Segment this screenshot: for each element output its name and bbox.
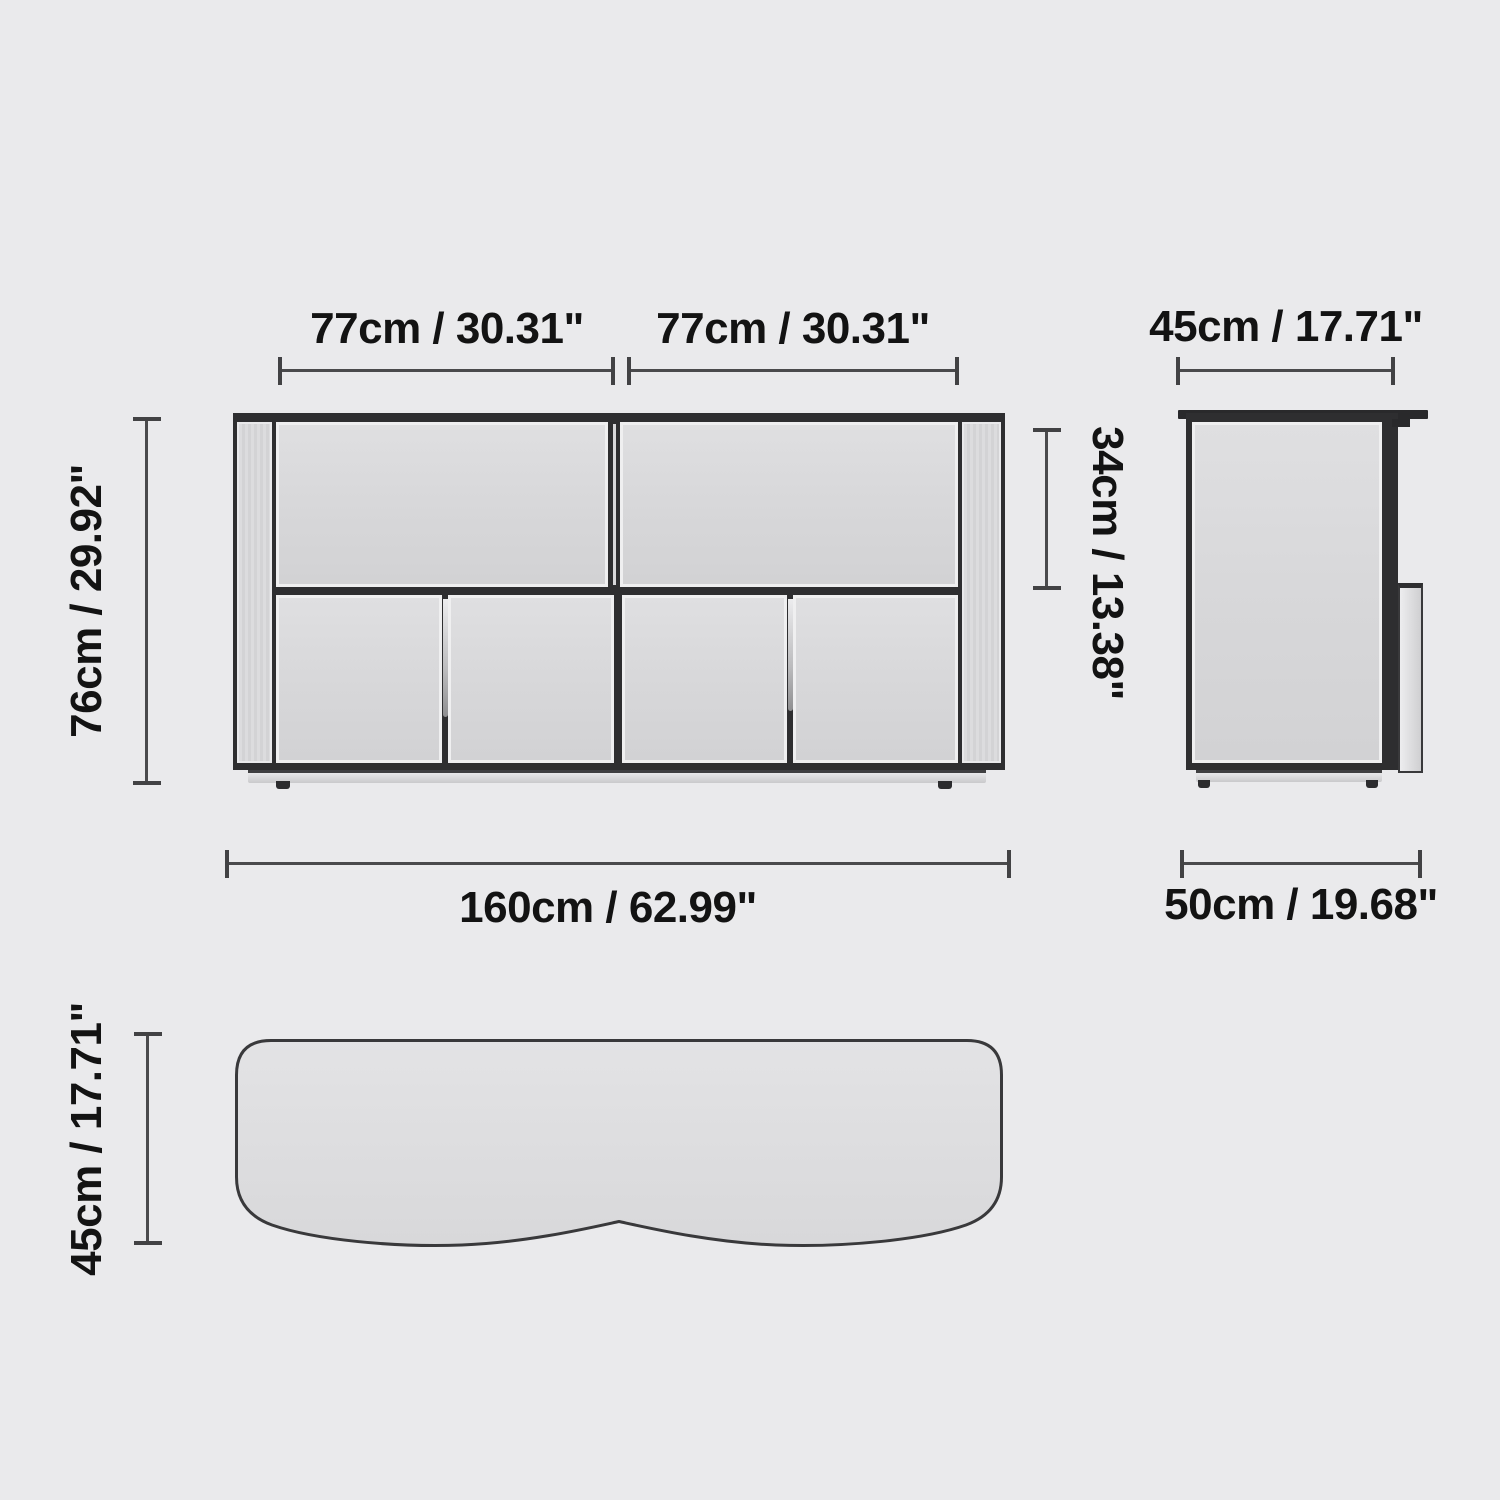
front-top-drawer-left bbox=[276, 422, 608, 587]
side-panel bbox=[1192, 422, 1382, 763]
top-view-drawing bbox=[233, 1037, 1005, 1250]
dim-label-front-width-right: 77cm / 30.31" bbox=[593, 299, 993, 359]
top-view-outline bbox=[237, 1041, 1002, 1246]
dim-label-side-base-depth: 50cm / 19.68" bbox=[1101, 875, 1500, 935]
side-view-drawing bbox=[1186, 413, 1398, 770]
dim-line-side-base-depth bbox=[1182, 862, 1420, 865]
front-view-drawing bbox=[233, 413, 1005, 770]
dim-line-side-top-depth bbox=[1178, 369, 1393, 372]
dim-label-front-width-left: 77cm / 30.31" bbox=[247, 299, 647, 359]
front-foot-right bbox=[938, 781, 952, 789]
dim-label-front-total-width: 160cm / 62.99" bbox=[408, 878, 808, 938]
dim-label-side-top-depth: 45cm / 17.71" bbox=[1086, 297, 1486, 357]
front-left-side-panel bbox=[237, 422, 272, 763]
dim-line-drawer-height bbox=[1045, 430, 1048, 588]
dim-label-top-view-depth: 45cm / 17.71" bbox=[57, 939, 117, 1339]
side-plinth bbox=[1196, 770, 1382, 782]
front-foot-left bbox=[276, 781, 290, 789]
front-top-drawer-right bbox=[620, 422, 958, 587]
side-foot-right bbox=[1366, 780, 1378, 788]
front-plinth bbox=[248, 770, 986, 783]
side-back-strip bbox=[1398, 583, 1423, 773]
front-door-handle-right bbox=[788, 599, 793, 711]
front-door-1 bbox=[276, 595, 442, 763]
dim-line-top-view-depth bbox=[146, 1034, 149, 1243]
front-right-side-panel bbox=[962, 422, 1001, 763]
side-top-hinge bbox=[1392, 419, 1410, 427]
dim-label-front-height: 76cm / 29.92" bbox=[57, 401, 117, 801]
front-door-2 bbox=[448, 595, 614, 763]
dimension-diagram: 77cm / 30.31" 77cm / 30.31" 45cm / 17.71… bbox=[0, 0, 1500, 1500]
dim-line-front-total-width bbox=[227, 862, 1009, 865]
front-door-4 bbox=[793, 595, 958, 763]
dim-line-front-height bbox=[145, 419, 148, 783]
side-foot-left bbox=[1198, 780, 1210, 788]
dim-line-front-width-left bbox=[280, 369, 613, 372]
front-door-3 bbox=[622, 595, 787, 763]
dim-line-front-width-right bbox=[629, 369, 957, 372]
front-door-handle-left bbox=[443, 599, 448, 717]
dim-label-drawer-height: 34cm / 13.38" bbox=[1077, 363, 1137, 763]
front-drawer-gap-line bbox=[613, 424, 616, 585]
